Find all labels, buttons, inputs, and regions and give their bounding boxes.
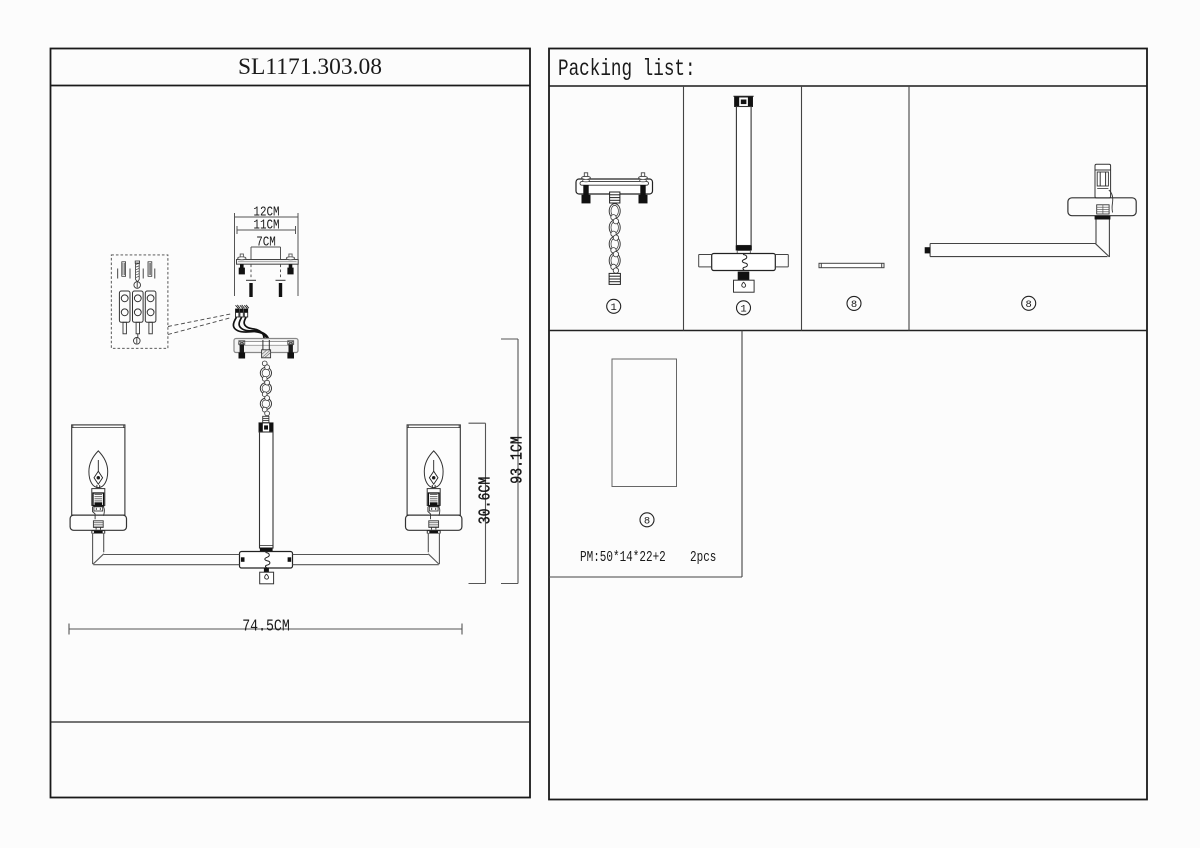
- svg-text:2pcs: 2pcs: [690, 549, 716, 566]
- svg-text:1: 1: [611, 302, 617, 314]
- svg-text:8: 8: [644, 516, 650, 528]
- svg-text:30.6CM: 30.6CM: [475, 477, 495, 525]
- svg-text:PM:50*14*22+2: PM:50*14*22+2: [580, 549, 666, 566]
- svg-text:8: 8: [851, 299, 857, 311]
- svg-text:8: 8: [1026, 299, 1032, 311]
- svg-text:SL1171.303.08: SL1171.303.08: [238, 54, 382, 80]
- svg-text:1: 1: [740, 304, 746, 316]
- svg-text:74.5CM: 74.5CM: [242, 616, 290, 636]
- svg-text:93.1CM: 93.1CM: [507, 436, 527, 484]
- svg-text:7CM: 7CM: [256, 234, 276, 249]
- svg-text:11CM: 11CM: [253, 217, 279, 232]
- svg-text:Packing list:: Packing list:: [558, 57, 696, 83]
